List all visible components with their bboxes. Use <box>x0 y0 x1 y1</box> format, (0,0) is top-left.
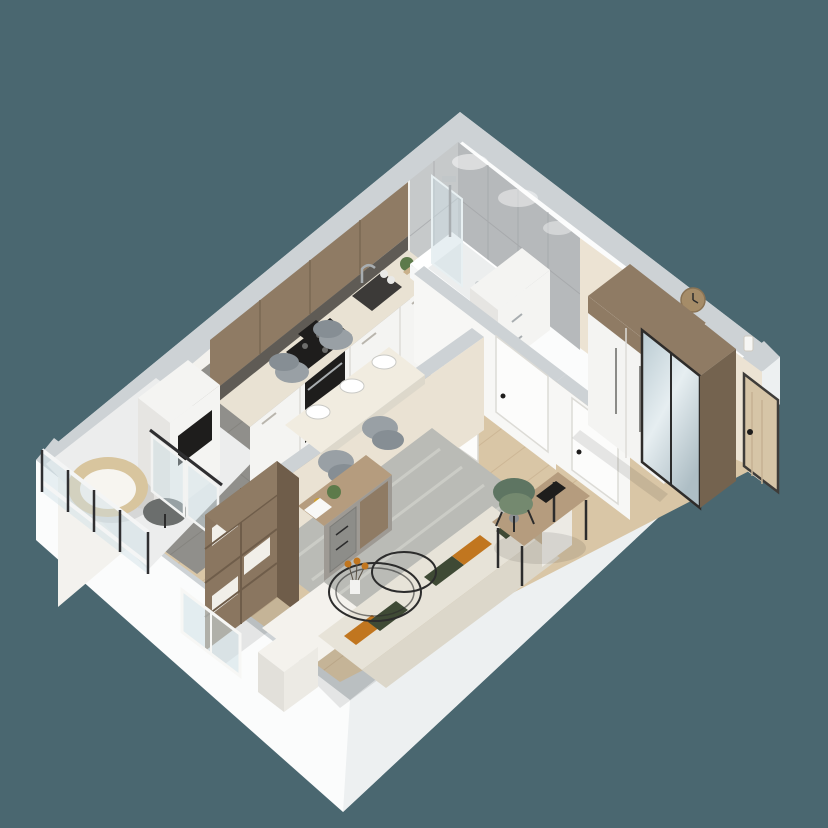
glassware <box>380 270 388 278</box>
flower-vase <box>350 580 360 594</box>
mirror-wardrobe-side <box>700 349 736 508</box>
flower <box>345 561 352 568</box>
entrance-door-handle <box>747 429 753 435</box>
bathroom-spotlight-glow <box>543 221 573 235</box>
plate <box>340 379 364 393</box>
plate <box>372 355 396 369</box>
flower <box>362 563 369 570</box>
storage-door-handle <box>577 450 582 455</box>
shower-head <box>442 176 456 182</box>
bathroom-spotlight-glow <box>452 154 488 170</box>
dining-chair-back <box>313 320 343 338</box>
sideboard-plant <box>327 485 341 499</box>
dining-chair-back <box>269 353 299 371</box>
bathroom-door-handle <box>501 394 506 399</box>
dining-chair-back <box>372 430 404 450</box>
flower <box>354 558 361 565</box>
desk-shadow <box>494 532 586 564</box>
bookshelf-side <box>277 461 299 614</box>
intercom-panel <box>744 336 753 351</box>
plate <box>306 405 330 419</box>
screenshot-root <box>0 0 828 828</box>
glassware <box>387 276 395 284</box>
burner <box>302 343 308 349</box>
floorplan-3d-render <box>0 0 828 828</box>
bathroom-spotlight-glow <box>498 189 538 207</box>
